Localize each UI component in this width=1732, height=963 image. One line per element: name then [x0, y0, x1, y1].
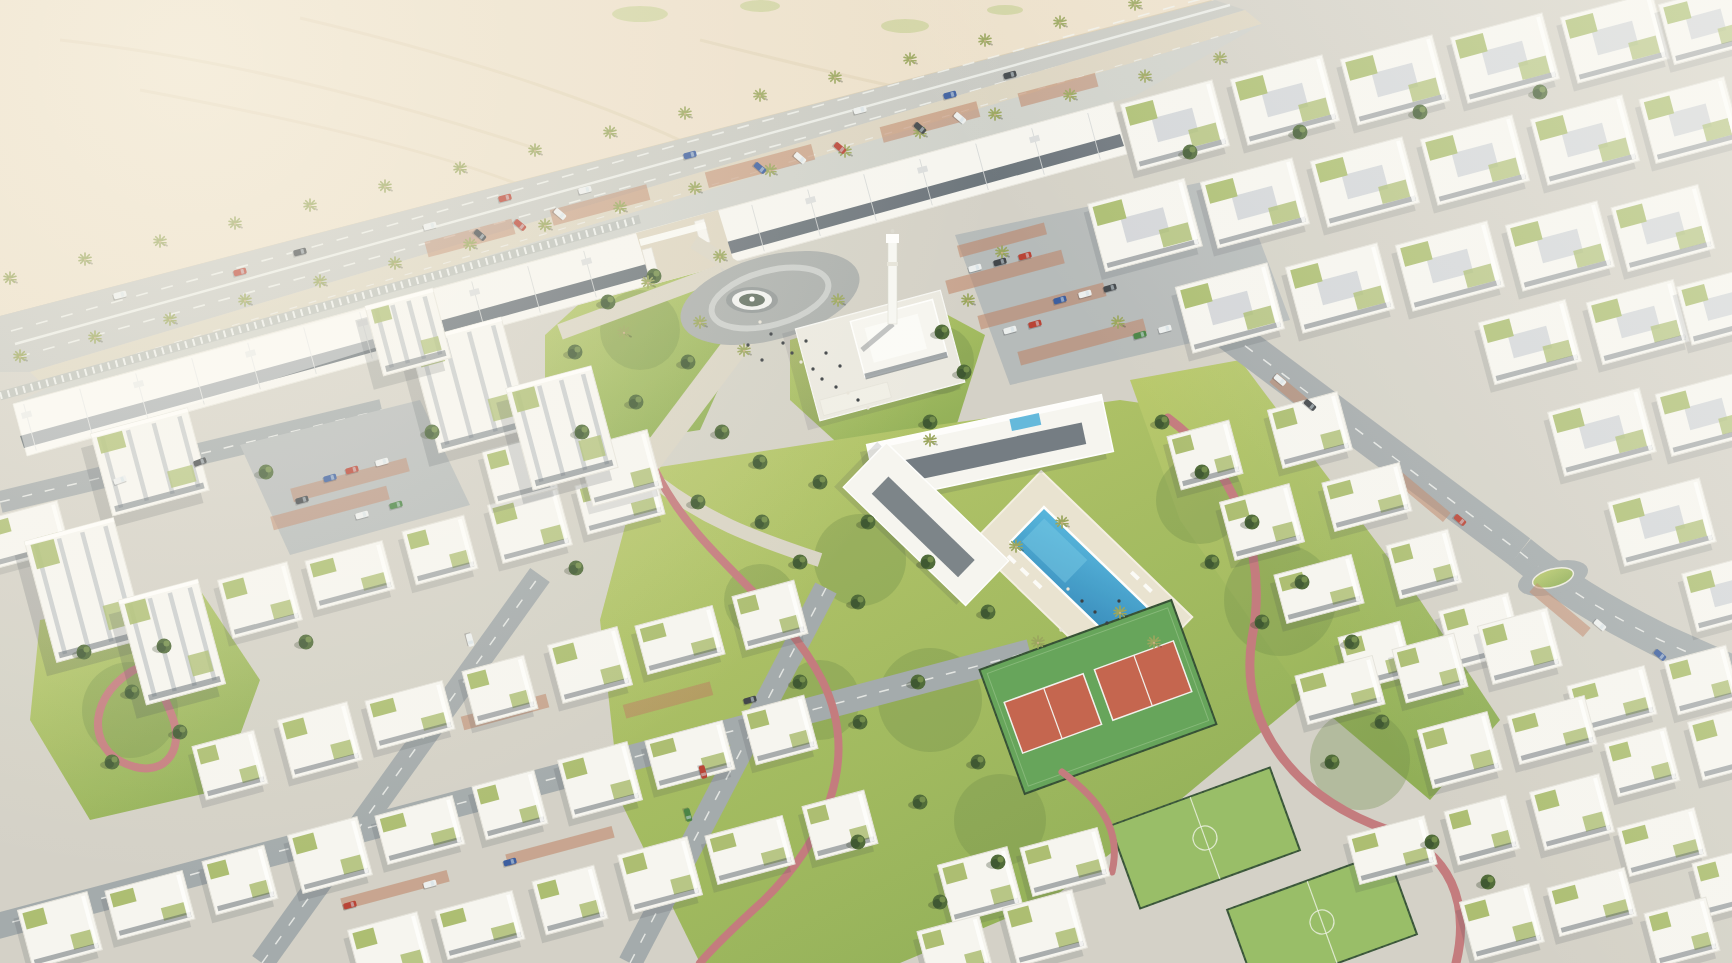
scene-canvas: [0, 0, 1732, 963]
aerial-masterplan-render: [0, 0, 1732, 963]
warm-tint-overlay: [0, 0, 1732, 963]
